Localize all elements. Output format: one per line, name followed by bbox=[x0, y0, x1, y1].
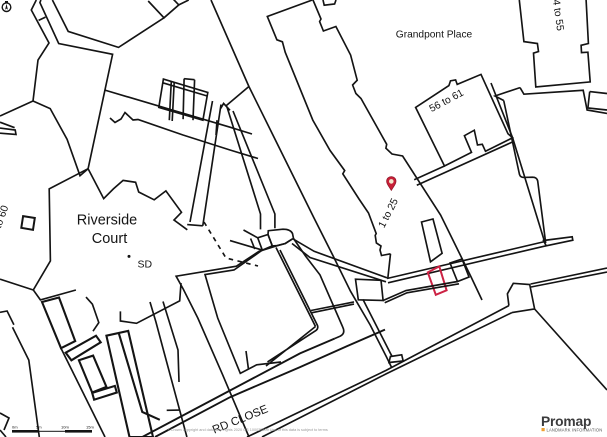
svg-text:LANDMARK INFORMATION: LANDMARK INFORMATION bbox=[547, 427, 603, 432]
svg-text:©Crown copyright and database: ©Crown copyright and database rights 202… bbox=[168, 428, 328, 432]
svg-text:15m: 15m bbox=[86, 425, 94, 430]
svg-text:4 to 55: 4 to 55 bbox=[550, 0, 565, 32]
svg-text:SD: SD bbox=[138, 259, 153, 271]
svg-text:56 to 61: 56 to 61 bbox=[428, 88, 466, 115]
svg-text:0m: 0m bbox=[12, 425, 18, 430]
svg-text:10m: 10m bbox=[61, 425, 69, 430]
svg-text:Riverside: Riverside bbox=[77, 213, 137, 229]
svg-text:Grandpont Place: Grandpont Place bbox=[396, 30, 473, 41]
svg-text:Court: Court bbox=[92, 231, 127, 247]
svg-text:1 to 60: 1 to 60 bbox=[0, 204, 11, 238]
svg-text:1 to 25: 1 to 25 bbox=[377, 197, 401, 230]
svg-text:5m: 5m bbox=[36, 425, 42, 430]
